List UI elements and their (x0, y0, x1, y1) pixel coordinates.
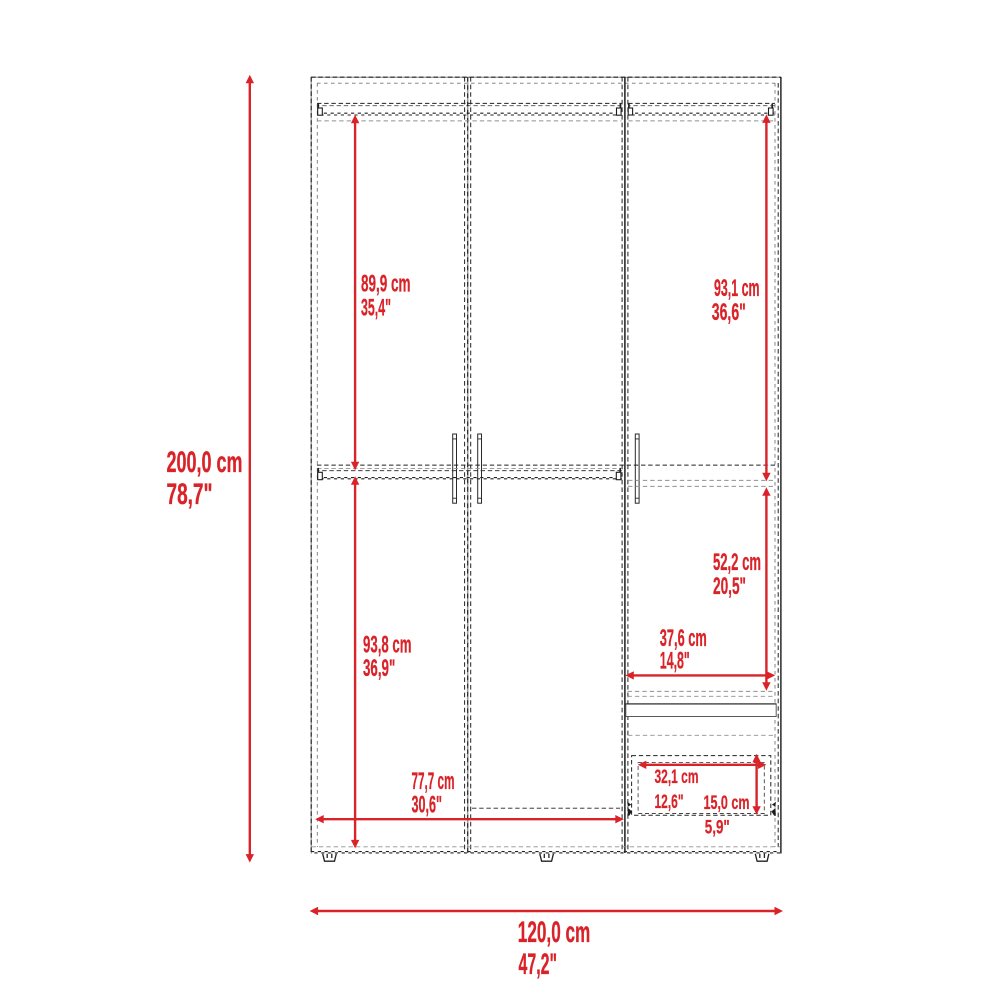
svg-text:47,2": 47,2" (519, 948, 558, 981)
svg-text:36,9": 36,9" (363, 655, 395, 682)
svg-text:32,1 cm: 32,1 cm (655, 766, 699, 788)
svg-text:15,0 cm: 15,0 cm (704, 792, 750, 814)
svg-text:36,6": 36,6" (712, 299, 746, 326)
svg-text:52,2 cm: 52,2 cm (713, 549, 761, 576)
svg-text:78,7": 78,7" (167, 478, 213, 511)
svg-text:30,6": 30,6" (412, 791, 443, 818)
svg-text:20,5": 20,5" (713, 573, 746, 600)
svg-text:5,9": 5,9" (705, 816, 730, 838)
svg-text:200,0 cm: 200,0 cm (167, 446, 243, 479)
svg-text:14,8": 14,8" (660, 648, 690, 675)
svg-text:120,0 cm: 120,0 cm (518, 916, 591, 949)
svg-text:12,6": 12,6" (655, 791, 684, 813)
svg-text:93,1 cm: 93,1 cm (714, 275, 760, 302)
svg-text:35,4": 35,4" (361, 294, 391, 321)
